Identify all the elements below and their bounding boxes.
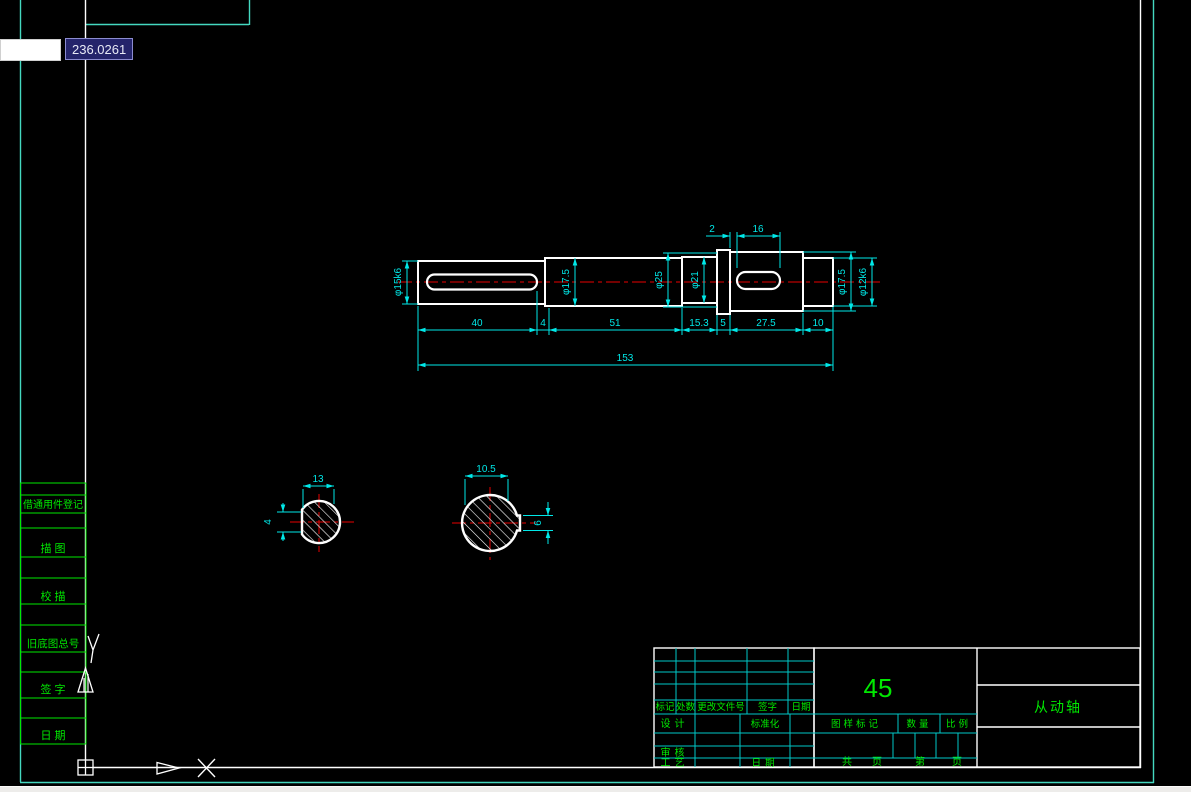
row-design-label: 设计: [661, 717, 689, 730]
dynamic-input-field[interactable]: [0, 39, 61, 61]
dim-dia-collar: φ25: [654, 271, 665, 289]
drawing-canvas[interactable]: 借通用件登记 描 图 校 描 旧底图总号 签 字 日 期 φ15k6 φ17.5: [0, 0, 1191, 792]
dim-dia-left-end: φ15k6: [393, 267, 404, 296]
rev-col-docno: 更改文件号: [697, 701, 745, 713]
dim-len-3: 51: [609, 318, 621, 329]
dim-secA-across: 13: [312, 474, 324, 485]
cross-section-a: 13 4: [263, 474, 354, 552]
row-process-label: 工艺: [661, 757, 689, 769]
page-no-unit: 页: [952, 756, 962, 768]
dim-len-1: 40: [471, 318, 483, 329]
title-block: 标记 处数 更改文件号 签字 日期 设计 标准化 审核 工艺 日期 图样标记 数…: [654, 648, 1140, 769]
dim-dia-third: φ21: [690, 271, 701, 289]
side-row-label: 校 描: [40, 589, 65, 603]
dim-len-2: 4: [540, 318, 546, 329]
dim-len-7: 10: [812, 318, 824, 329]
dim-secA-depth: 4: [263, 519, 274, 525]
inner-frame: [86, 0, 1142, 768]
rev-col-date: 日期: [791, 702, 810, 713]
cross-section-b: 10.5 6: [452, 464, 553, 560]
outer-frame: [20, 0, 1154, 783]
quantity-label: 数量: [906, 718, 931, 730]
dim-len-total: 153: [617, 353, 634, 364]
check-mark-symbol: [88, 634, 99, 663]
status-bar-edge: [0, 786, 1191, 792]
scale-label: 比例: [946, 718, 971, 730]
page-no-label: 第: [915, 755, 925, 768]
axis-arrow-icon: [157, 763, 179, 775]
dynamic-input-tooltip: 236.0261: [65, 38, 133, 60]
side-row-label: 描 图: [40, 541, 65, 555]
dim-dia-keyseat: φ17.5: [837, 269, 848, 295]
total-pages-label: 共: [842, 756, 852, 768]
crosshair-cursor[interactable]: [78, 760, 93, 775]
dim-secB-across: 10.5: [476, 464, 496, 475]
cad-workspace[interactable]: 借通用件登记 描 图 校 描 旧底图总号 签 字 日 期 φ15k6 φ17.5: [0, 0, 1191, 792]
dim-dia-right-end: φ12k6: [858, 267, 869, 296]
keyway-slot-right: [737, 272, 780, 289]
dim-secB-width: 6: [533, 520, 544, 526]
dim-key-length: 16: [752, 224, 764, 235]
rev-col-mark: 标记: [655, 701, 675, 713]
side-row-label: 日 期: [40, 729, 65, 742]
rev-col-sign: 签字: [758, 701, 777, 713]
dim-len-5: 5: [720, 318, 726, 329]
drawing-mark-label: 图样标记: [831, 718, 881, 730]
side-signature-table: 借通用件登记 描 图 校 描 旧底图总号 签 字 日 期: [20, 483, 86, 744]
dim-len-6: 27.5: [756, 318, 776, 329]
side-row-label: 旧底图总号: [27, 637, 80, 650]
side-row-label: 借通用件登记: [23, 498, 83, 511]
rev-col-count: 处数: [676, 701, 696, 713]
side-row-label: 签 字: [40, 682, 65, 696]
row-standard-label: 标准化: [751, 718, 780, 730]
part-name: 从动轴: [1034, 699, 1082, 715]
row-date-label: 日期: [751, 758, 778, 769]
total-pages-unit: 页: [872, 756, 882, 768]
shaft-dimensions: φ15k6 φ17.5 φ25 φ21 φ17.5 φ12k6 2 16: [393, 224, 877, 371]
dim-key-offset: 2: [709, 224, 715, 235]
dim-len-4: 15.3: [689, 318, 709, 329]
material-value: 45: [864, 673, 893, 703]
dim-dia-second: φ17.5: [561, 269, 572, 295]
